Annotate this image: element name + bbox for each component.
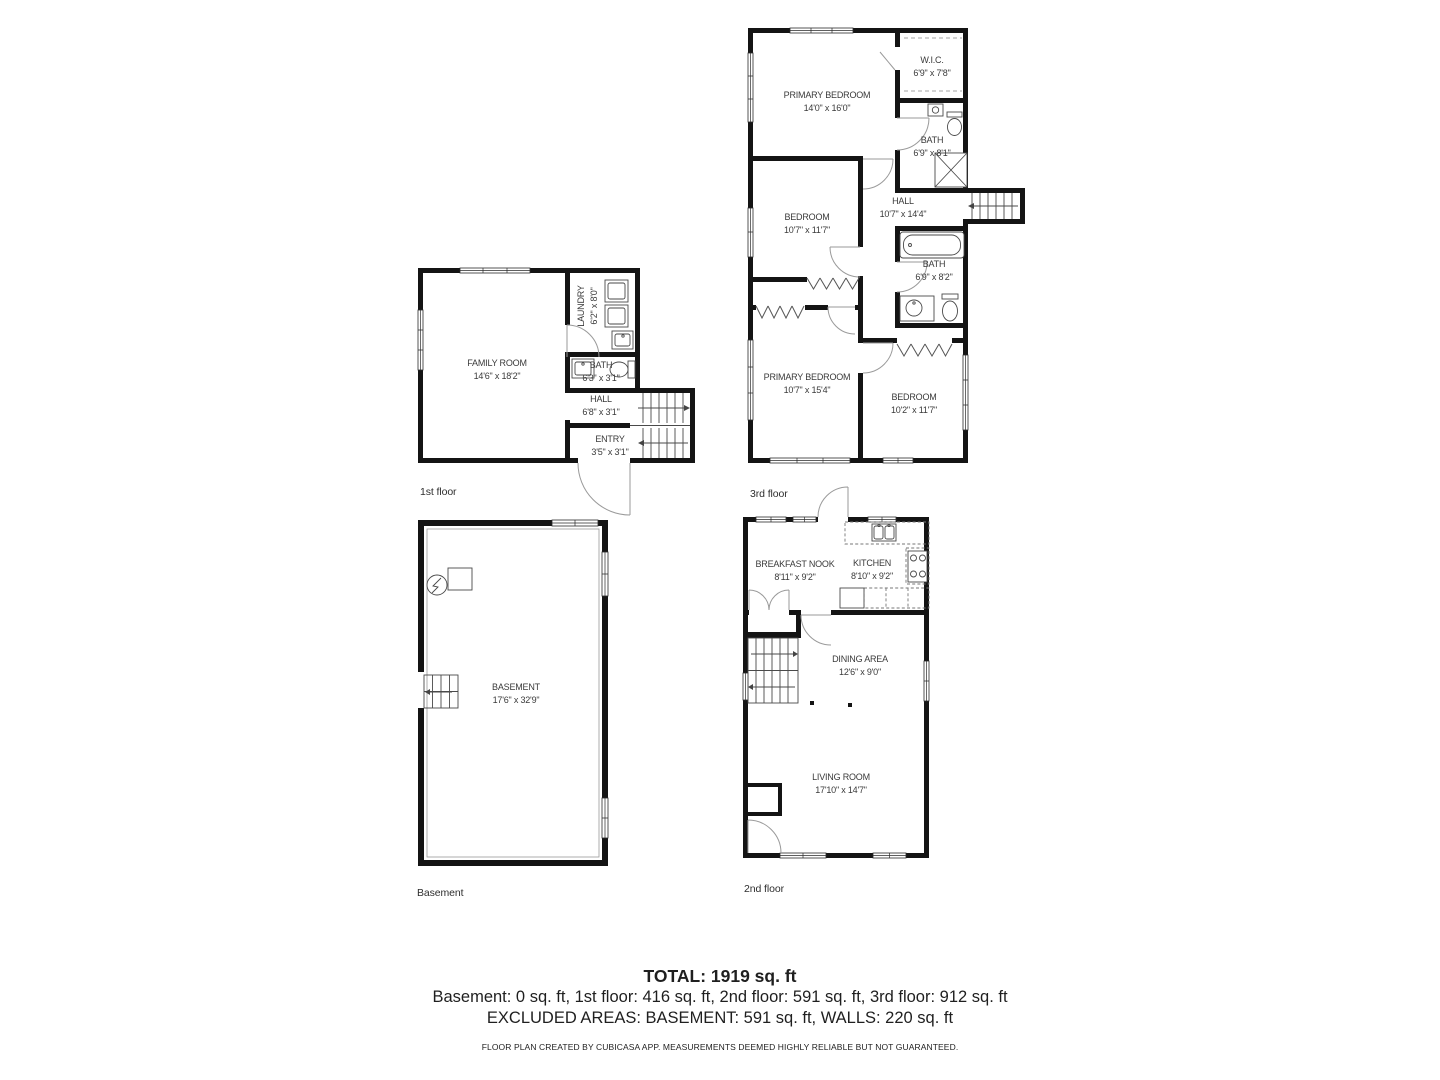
entry-door-arc-icon xyxy=(578,463,630,515)
floor-plan-image: FAMILY ROOM 14'6" x 18'2" LAUNDRY 6'2" x… xyxy=(0,0,1440,1080)
third-floor-drawing xyxy=(742,13,1032,471)
room-label-bath-first: BATH 6'3" x 3'1" xyxy=(582,359,619,385)
room-label-bath-lower: BATH 6'9" x 8'2" xyxy=(915,258,952,284)
toilet-icon xyxy=(947,112,962,136)
room-label-breakfast-nook: BREAKFAST NOOK 8'11" x 9'2" xyxy=(755,558,834,584)
stairs-icon xyxy=(968,193,1018,219)
bedroom-upper-door-arc-icon xyxy=(830,247,860,277)
window-icon xyxy=(552,520,608,838)
living-door-arc-icon xyxy=(748,820,781,853)
room-label-bedroom-lower: BEDROOM 10'2" x 11'7" xyxy=(891,391,937,417)
room-label-primary-bedroom-upper: PRIMARY BEDROOM 14'0" x 16'0" xyxy=(784,89,871,115)
bathtub-icon xyxy=(900,232,964,258)
room-label-hall-third: HALL 10'7" x 14'4" xyxy=(880,195,927,221)
floor-label-basement: Basement xyxy=(417,887,463,899)
stove-icon xyxy=(906,548,929,584)
window-icon xyxy=(418,268,530,370)
walls xyxy=(418,268,695,463)
room-label-hall-first: HALL 6'8" x 3'1" xyxy=(582,393,619,419)
room-label-basement: BASEMENT 17'6" x 32'9" xyxy=(492,681,540,707)
room-label-primary-bedroom-lower: PRIMARY BEDROOM 10'7" x 15'4" xyxy=(764,371,851,397)
room-label-dining-area: DINING AREA 12'6" x 9'0" xyxy=(832,653,888,679)
wic-door-icon xyxy=(880,52,895,70)
french-doors-icon xyxy=(749,590,789,610)
room-label-bedroom-upper: BEDROOM 10'7" x 11'7" xyxy=(784,211,830,237)
toilet-icon-2 xyxy=(942,294,958,321)
first-floor-plan: FAMILY ROOM 14'6" x 18'2" LAUNDRY 6'2" x… xyxy=(413,262,713,512)
floor-areas-text: Basement: 0 sq. ft, 1st floor: 416 sq. f… xyxy=(0,987,1440,1008)
stairs-icon xyxy=(424,675,458,708)
area-summary: TOTAL: 1919 sq. ft Basement: 0 sq. ft, 1… xyxy=(0,966,1440,1052)
dining-door-arc-icon xyxy=(801,615,831,645)
room-label-kitchen: KITCHEN 8'10" x 9'2" xyxy=(851,557,893,583)
kitchen-sink-icon xyxy=(872,524,896,541)
floor-label-first: 1st floor xyxy=(420,486,456,498)
vanity-sink-icon xyxy=(928,104,943,116)
room-label-bath-upper: BATH 6'9" x 8'1" xyxy=(913,134,950,160)
floor-label-second: 2nd floor xyxy=(744,883,784,895)
excluded-areas-text: EXCLUDED AREAS: BASEMENT: 591 sq. ft, WA… xyxy=(0,1008,1440,1029)
electrical-panel-icon xyxy=(427,575,447,595)
stairs-icon xyxy=(630,393,690,458)
third-floor-plan: PRIMARY BEDROOM 14'0" x 16'0" W.I.C. 6'9… xyxy=(742,13,1037,508)
dryer-icon xyxy=(605,305,628,327)
room-label-laundry: LAUNDRY 6'2" x 8'0" xyxy=(575,285,601,326)
room-label-family-room: FAMILY ROOM 14'6" x 18'2" xyxy=(467,357,526,383)
stairs-icon xyxy=(748,638,798,703)
second-floor-plan: BREAKFAST NOOK 8'11" x 9'2" KITCHEN 8'10… xyxy=(736,480,946,905)
disclaimer-text: FLOOR PLAN CREATED BY CUBICASA APP. MEAS… xyxy=(0,1042,1440,1052)
bedroom-lower-door-arc-icon xyxy=(863,343,893,373)
primary-bedroom-upper-door-arc-icon xyxy=(863,159,893,189)
washer-icon xyxy=(605,280,628,302)
room-label-wic: W.I.C. 6'9" x 7'8" xyxy=(913,54,950,80)
utility-box-icon xyxy=(448,568,472,590)
room-label-living-room: LIVING ROOM 17'10" x 14'7" xyxy=(812,771,870,797)
primary-bedroom-lower-door-arc-icon xyxy=(828,307,855,334)
first-floor-drawing xyxy=(413,262,703,524)
exterior-door-arc-icon xyxy=(818,487,848,517)
laundry-sink-icon xyxy=(612,331,633,349)
total-area-text: TOTAL: 1919 sq. ft xyxy=(0,966,1440,987)
vanity-sink-icon-2 xyxy=(900,296,934,321)
room-label-entry: ENTRY 3'5" x 3'1" xyxy=(591,433,628,459)
basement-plan: BASEMENT 17'6" x 32'9" Basement xyxy=(412,512,617,907)
